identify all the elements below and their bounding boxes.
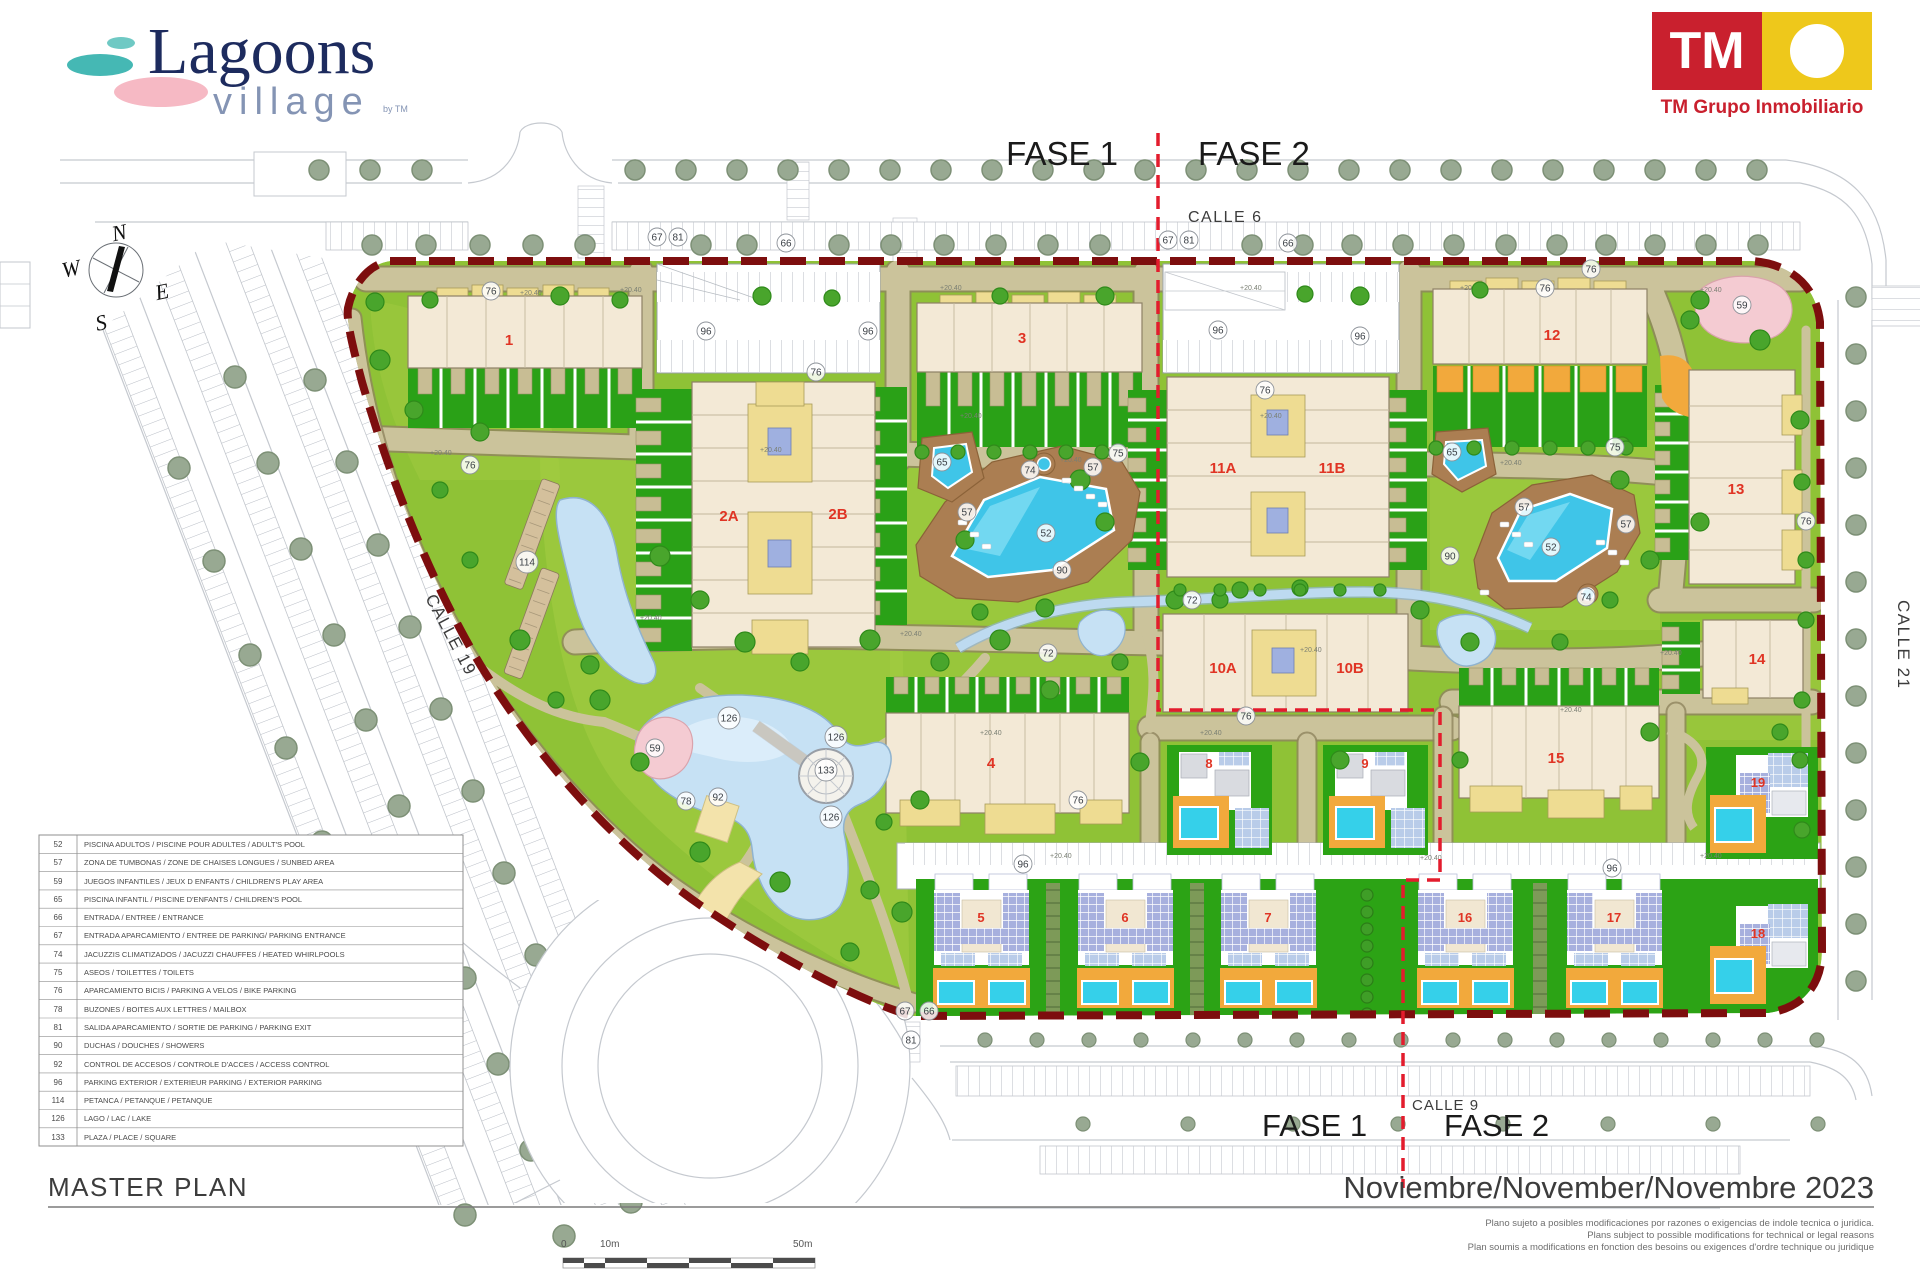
svg-text:67: 67 bbox=[1162, 236, 1174, 247]
svg-text:67: 67 bbox=[54, 931, 63, 940]
svg-text:BUZONES / BOITES AUX LETTRES /: BUZONES / BOITES AUX LETTRES / MAILBOX bbox=[84, 1005, 247, 1014]
svg-text:PARKING EXTERIOR / EXTERIEUR P: PARKING EXTERIOR / EXTERIEUR PARKING / E… bbox=[84, 1078, 322, 1087]
svg-text:ENTRADA / ENTREE / ENTRANCE: ENTRADA / ENTREE / ENTRANCE bbox=[84, 913, 204, 922]
svg-text:APARCAMIENTO BICIS / PARKING A: APARCAMIENTO BICIS / PARKING A VELOS / B… bbox=[84, 986, 297, 995]
svg-text:15: 15 bbox=[1548, 750, 1565, 767]
svg-text:3: 3 bbox=[1018, 330, 1026, 347]
svg-text:92: 92 bbox=[712, 793, 724, 804]
svg-text:59: 59 bbox=[649, 744, 661, 755]
svg-text:78: 78 bbox=[54, 1005, 63, 1014]
svg-text:ASEOS / TOILETTES / TOILETS: ASEOS / TOILETTES / TOILETS bbox=[84, 968, 194, 977]
svg-text:57: 57 bbox=[54, 858, 63, 867]
svg-text:90: 90 bbox=[54, 1041, 63, 1050]
svg-text:74: 74 bbox=[1024, 466, 1036, 477]
svg-text:CALLE 21: CALLE 21 bbox=[1894, 600, 1913, 690]
svg-text:1: 1 bbox=[505, 332, 513, 349]
svg-text:52: 52 bbox=[1545, 543, 1557, 554]
svg-text:village: village bbox=[213, 81, 370, 123]
svg-text:114: 114 bbox=[519, 558, 535, 569]
svg-text:+20.40: +20.40 bbox=[900, 631, 922, 638]
svg-text:+20.40: +20.40 bbox=[1700, 853, 1722, 860]
svg-text:66: 66 bbox=[923, 1007, 935, 1018]
svg-text:81: 81 bbox=[1183, 236, 1195, 247]
svg-text:5: 5 bbox=[977, 910, 984, 925]
svg-text:CALLE 9: CALLE 9 bbox=[1412, 1097, 1479, 1114]
svg-text:57: 57 bbox=[1518, 503, 1530, 514]
svg-text:9: 9 bbox=[1361, 756, 1368, 771]
svg-text:2B: 2B bbox=[828, 506, 847, 523]
svg-text:76: 76 bbox=[1072, 796, 1084, 807]
svg-text:50m: 50m bbox=[793, 1239, 812, 1250]
svg-text:FASE 1: FASE 1 bbox=[1262, 1108, 1367, 1143]
svg-text:81: 81 bbox=[54, 1023, 63, 1032]
svg-text:ZONA DE TUMBONAS / ZONE DE CHA: ZONA DE TUMBONAS / ZONE DE CHAISES LONGU… bbox=[84, 858, 334, 867]
svg-text:90: 90 bbox=[1444, 552, 1456, 563]
svg-text:10A: 10A bbox=[1209, 660, 1237, 677]
svg-text:+20.40: +20.40 bbox=[760, 447, 782, 454]
svg-text:81: 81 bbox=[672, 233, 684, 244]
svg-text:72: 72 bbox=[1042, 649, 1054, 660]
svg-text:11A: 11A bbox=[1210, 460, 1237, 477]
svg-text:+20.40: +20.40 bbox=[1500, 460, 1522, 467]
svg-text:+20.40: +20.40 bbox=[980, 730, 1002, 737]
svg-text:96: 96 bbox=[1212, 326, 1224, 337]
svg-text:ENTRADA APARCAMIENTO / ENTREE: ENTRADA APARCAMIENTO / ENTREE DE PARKING… bbox=[84, 931, 346, 940]
svg-text:66: 66 bbox=[1282, 239, 1294, 250]
svg-text:133: 133 bbox=[818, 766, 835, 777]
svg-text:78: 78 bbox=[680, 797, 692, 808]
svg-text:+20.40: +20.40 bbox=[520, 290, 542, 297]
svg-text:133: 133 bbox=[51, 1133, 65, 1142]
svg-text:7: 7 bbox=[1264, 910, 1271, 925]
svg-text:+20.40: +20.40 bbox=[1660, 650, 1682, 657]
svg-text:96: 96 bbox=[1017, 860, 1029, 871]
svg-text:76: 76 bbox=[464, 461, 476, 472]
svg-text:+20.40: +20.40 bbox=[1300, 647, 1322, 654]
svg-text:+20.40: +20.40 bbox=[960, 413, 982, 420]
svg-text:12: 12 bbox=[1544, 327, 1561, 344]
svg-text:JUEGOS INFANTILES / JEUX D ENF: JUEGOS INFANTILES / JEUX D ENFANTS / CHI… bbox=[84, 877, 323, 886]
svg-text:81: 81 bbox=[905, 1036, 917, 1047]
svg-text:PETANCA / PETANQUE / PETANQUE: PETANCA / PETANQUE / PETANQUE bbox=[84, 1096, 212, 1105]
svg-text:+20.40: +20.40 bbox=[430, 450, 452, 457]
svg-text:57: 57 bbox=[1620, 520, 1632, 531]
svg-text:8: 8 bbox=[1205, 756, 1212, 771]
svg-text:PISCINA INFANTIL / PISCINE D'E: PISCINA INFANTIL / PISCINE D'ENFANTS / C… bbox=[84, 895, 302, 904]
svg-text:14: 14 bbox=[1749, 651, 1766, 668]
svg-text:TM: TM bbox=[1669, 22, 1744, 80]
svg-text:+20.40: +20.40 bbox=[1260, 413, 1282, 420]
svg-text:67: 67 bbox=[651, 233, 663, 244]
svg-text:Noviembre/November/Novembre 20: Noviembre/November/Novembre 2023 bbox=[1343, 1170, 1874, 1205]
svg-text:+20.40: +20.40 bbox=[940, 285, 962, 292]
svg-text:76: 76 bbox=[1259, 386, 1271, 397]
svg-text:76: 76 bbox=[810, 368, 822, 379]
svg-text:126: 126 bbox=[823, 813, 840, 824]
svg-text:Plano sujeto a posibles modifi: Plano sujeto a posibles modificaciones p… bbox=[1485, 1218, 1874, 1229]
svg-text:76: 76 bbox=[485, 287, 497, 298]
svg-text:18: 18 bbox=[1751, 926, 1765, 941]
svg-text:JACUZZIS CLIMATIZADOS / JACUZZ: JACUZZIS CLIMATIZADOS / JACUZZI CHAUFFES… bbox=[84, 950, 345, 959]
svg-text:Lagoons: Lagoons bbox=[148, 15, 375, 88]
svg-text:76: 76 bbox=[1585, 265, 1597, 276]
svg-text:59: 59 bbox=[54, 877, 63, 886]
svg-text:17: 17 bbox=[1607, 910, 1621, 925]
svg-text:10B: 10B bbox=[1336, 660, 1364, 677]
svg-text:Plan soumis a modifications en: Plan soumis a modifications en fonction … bbox=[1468, 1242, 1874, 1253]
svg-text:2A: 2A bbox=[719, 508, 738, 525]
svg-text:66: 66 bbox=[780, 239, 792, 250]
svg-text:+20.40: +20.40 bbox=[1200, 730, 1222, 737]
svg-text:76: 76 bbox=[1800, 517, 1812, 528]
svg-text:75: 75 bbox=[1112, 449, 1124, 460]
svg-text:CONTROL DE ACCESOS / CONTROLE: CONTROL DE ACCESOS / CONTROLE D'ACCES / … bbox=[84, 1060, 329, 1069]
svg-text:65: 65 bbox=[936, 458, 948, 469]
svg-text:96: 96 bbox=[700, 327, 712, 338]
svg-text:74: 74 bbox=[54, 950, 63, 959]
svg-text:65: 65 bbox=[1446, 448, 1458, 459]
svg-text:114: 114 bbox=[52, 1096, 65, 1105]
svg-text:Plans subject to possible modi: Plans subject to possible modifications … bbox=[1587, 1230, 1874, 1241]
svg-text:DUCHAS / DOUCHES / SHOWERS: DUCHAS / DOUCHES / SHOWERS bbox=[84, 1041, 204, 1050]
svg-text:126: 126 bbox=[721, 714, 738, 725]
svg-text:MASTER PLAN: MASTER PLAN bbox=[48, 1172, 248, 1202]
svg-text:+20.40: +20.40 bbox=[640, 615, 662, 622]
svg-text:13: 13 bbox=[1728, 481, 1745, 498]
svg-text:59: 59 bbox=[1736, 301, 1748, 312]
svg-text:126: 126 bbox=[828, 733, 845, 744]
svg-text:67: 67 bbox=[899, 1007, 911, 1018]
svg-text:0: 0 bbox=[561, 1239, 567, 1250]
svg-text:16: 16 bbox=[1458, 910, 1472, 925]
svg-text:76: 76 bbox=[1539, 284, 1551, 295]
svg-text:+20.40: +20.40 bbox=[1560, 707, 1582, 714]
svg-text:96: 96 bbox=[1606, 864, 1618, 875]
svg-text:FASE 2: FASE 2 bbox=[1198, 135, 1310, 172]
svg-text:96: 96 bbox=[862, 327, 874, 338]
svg-text:10m: 10m bbox=[600, 1239, 619, 1250]
svg-text:57: 57 bbox=[961, 508, 973, 519]
svg-text:92: 92 bbox=[54, 1060, 63, 1069]
svg-text:52: 52 bbox=[54, 840, 63, 849]
svg-text:76: 76 bbox=[1240, 712, 1252, 723]
svg-text:FASE 1: FASE 1 bbox=[1006, 135, 1118, 172]
svg-text:126: 126 bbox=[51, 1114, 65, 1123]
svg-text:65: 65 bbox=[54, 895, 63, 904]
svg-text:by TM: by TM bbox=[383, 104, 408, 114]
svg-text:+20.40: +20.40 bbox=[1050, 853, 1072, 860]
svg-text:19: 19 bbox=[1751, 775, 1765, 790]
svg-text:PISCINA ADULTOS / PISCINE POU: PISCINA ADULTOS / PISCINE POUR ADULTES /… bbox=[84, 840, 305, 849]
svg-text:75: 75 bbox=[1609, 443, 1621, 454]
svg-text:PLAZA / PLACE / SQUARE: PLAZA / PLACE / SQUARE bbox=[84, 1133, 176, 1142]
svg-text:+20.40: +20.40 bbox=[1240, 285, 1262, 292]
svg-text:74: 74 bbox=[1580, 593, 1592, 604]
svg-text:11B: 11B bbox=[1319, 460, 1346, 477]
svg-text:96: 96 bbox=[1354, 332, 1366, 343]
svg-text:66: 66 bbox=[54, 913, 63, 922]
svg-text:CALLE 6: CALLE 6 bbox=[1188, 209, 1263, 226]
svg-text:96: 96 bbox=[54, 1078, 63, 1087]
svg-text:4: 4 bbox=[987, 755, 996, 772]
svg-text:LAGO / LAC / LAKE: LAGO / LAC / LAKE bbox=[84, 1114, 151, 1123]
svg-text:76: 76 bbox=[54, 986, 63, 995]
svg-text:57: 57 bbox=[1087, 463, 1099, 474]
svg-text:72: 72 bbox=[1186, 596, 1198, 607]
svg-text:SALIDA APARCAMIENTO / SORTIE D: SALIDA APARCAMIENTO / SORTIE DE PARKING … bbox=[84, 1023, 312, 1032]
svg-text:75: 75 bbox=[54, 968, 63, 977]
svg-text:90: 90 bbox=[1056, 566, 1068, 577]
svg-text:TM Grupo Inmobiliario: TM Grupo Inmobiliario bbox=[1661, 97, 1864, 118]
svg-text:52: 52 bbox=[1040, 529, 1052, 540]
svg-text:6: 6 bbox=[1121, 910, 1128, 925]
